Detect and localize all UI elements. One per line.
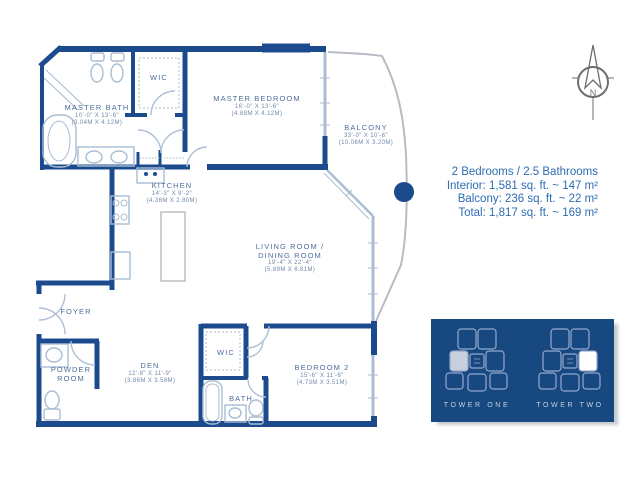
balcony-column bbox=[394, 182, 414, 202]
tower-one-keyplan bbox=[445, 328, 509, 398]
north-compass-icon: N bbox=[572, 45, 614, 120]
master-bath-toilets bbox=[91, 53, 124, 82]
unit-summary: 2 Bedrooms / 2.5 Bathrooms Interior: 1,5… bbox=[447, 166, 598, 220]
room-label-kitchen: KITCHEN 14'-3" X 9'-2" (4.36M X 2.80M) bbox=[147, 182, 198, 205]
room-label-powder-room: POWDER ROOM bbox=[51, 366, 91, 383]
tower-key-panel: TOWER ONE TOWER TWO bbox=[431, 319, 614, 422]
room-label-bedroom-2: BEDROOM 2 15'-6" X 11'-6" (4.73M X 3.51M… bbox=[295, 364, 350, 387]
tower-two-unit-highlight bbox=[579, 351, 597, 371]
room-label-wic-lower: WIC bbox=[217, 349, 235, 358]
floor-plan-page: N MASTER BATH 10'-0" X 13'-6" (3.04M X 4… bbox=[0, 0, 640, 480]
room-label-master-bath: MASTER BATH 10'-0" X 13'-6" (3.04M X 4.1… bbox=[65, 104, 130, 127]
balcony-outline bbox=[328, 52, 407, 321]
master-bath-vanity bbox=[78, 147, 134, 166]
room-label-bath: BATH bbox=[229, 395, 253, 404]
room-label-den: DEN 12'-8" X 11'-9" (3.86M X 3.58M) bbox=[125, 362, 176, 385]
room-label-wic-upper: WIC bbox=[150, 74, 168, 83]
room-label-balcony: BALCONY 33'-0" X 10'-6" (10.06M X 3.20M) bbox=[339, 124, 393, 147]
kitchen-island bbox=[161, 212, 185, 281]
room-label-foyer: FOYER bbox=[60, 308, 91, 317]
summary-balcony: Balcony: 236 sq. ft. ~ 22 m² bbox=[447, 193, 598, 207]
summary-total: Total: 1,817 sq. ft. ~ 169 m² bbox=[447, 207, 598, 221]
tower-one-unit-highlight bbox=[450, 351, 468, 371]
summary-bed-bath: 2 Bedrooms / 2.5 Bathrooms bbox=[447, 166, 598, 180]
room-label-living-dining: LIVING ROOM / DINING ROOM 19'-4" X 22'-4… bbox=[256, 243, 324, 274]
tower-one-label: TOWER ONE bbox=[444, 402, 510, 409]
compass-north-letter: N bbox=[590, 88, 597, 98]
tower-two-label: TOWER TWO bbox=[536, 402, 603, 409]
tower-two-keyplan bbox=[538, 328, 602, 398]
summary-interior: Interior: 1,581 sq. ft. ~ 147 m² bbox=[447, 180, 598, 194]
room-label-master-bedroom: MASTER BEDROOM 16'-0" X 13'-6" (4.88M X … bbox=[213, 95, 301, 118]
